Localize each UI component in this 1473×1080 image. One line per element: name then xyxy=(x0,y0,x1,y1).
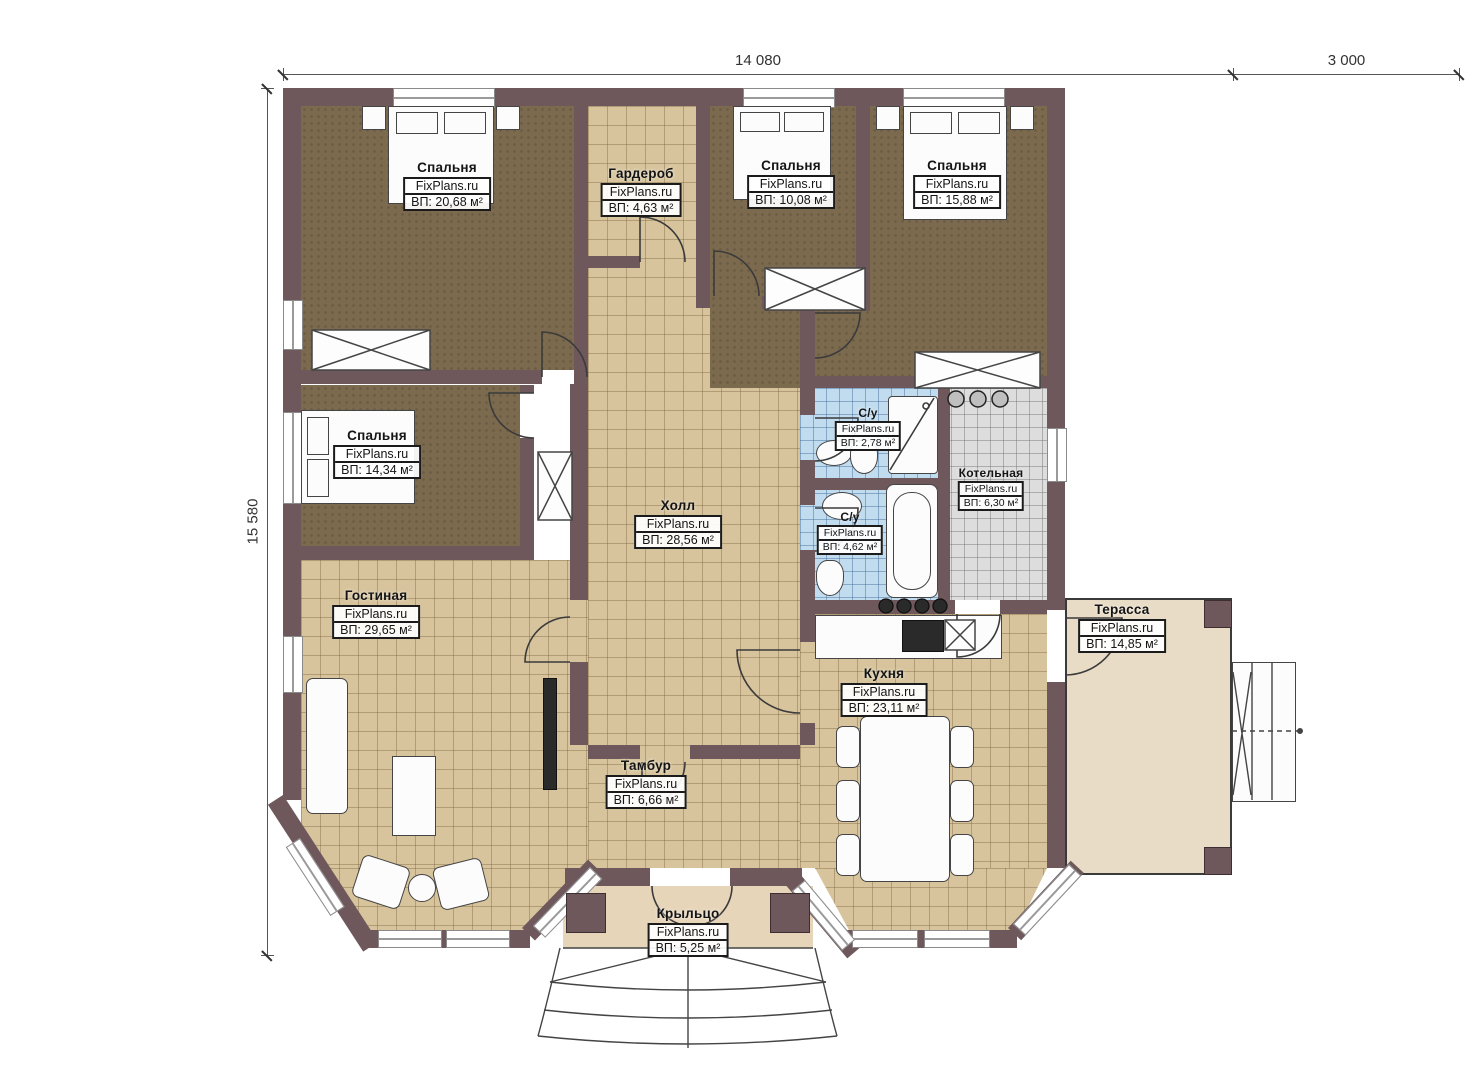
room-label-bedroom-top-right: Спальня FixPlans.ruВП: 15,88 м² xyxy=(913,158,1001,209)
room-site: FixPlans.ru xyxy=(837,423,899,437)
room-site: FixPlans.ru xyxy=(334,607,418,623)
boiler-unit xyxy=(970,391,986,407)
room-site: FixPlans.ru xyxy=(915,177,999,193)
burner xyxy=(897,599,911,613)
room-area: ВП: 5,25 м² xyxy=(650,941,727,955)
porch-steps xyxy=(815,948,837,1036)
floor-plan: 14 080 3 000 15 580 xyxy=(0,0,1473,1080)
room-label-wardrobe: Гардероб FixPlans.ruВП: 4,63 м² xyxy=(601,166,682,217)
room-area: ВП: 4,62 м² xyxy=(819,541,881,553)
room-label-bathroom-lower: С/у FixPlans.ruВП: 4,62 м² xyxy=(817,510,883,555)
room-name: С/у xyxy=(835,406,901,420)
door-arc xyxy=(489,393,534,438)
stair-diagonal xyxy=(1233,672,1251,795)
room-site: FixPlans.ru xyxy=(1080,621,1164,637)
room-name: Спальня xyxy=(747,158,835,173)
room-area: ВП: 6,66 м² xyxy=(608,793,685,807)
room-label-bathroom-upper: С/у FixPlans.ruВП: 2,78 м² xyxy=(835,406,901,451)
room-site: FixPlans.ru xyxy=(636,517,720,533)
room-site: FixPlans.ru xyxy=(603,185,680,201)
door-arc xyxy=(737,650,800,713)
room-name: Спальня xyxy=(333,428,421,443)
room-area: ВП: 10,08 м² xyxy=(749,193,833,207)
room-area: ВП: 14,34 м² xyxy=(335,463,419,477)
door-arc xyxy=(542,332,587,377)
room-area: ВП: 29,65 м² xyxy=(334,623,418,637)
burner xyxy=(915,599,929,613)
door-arc xyxy=(525,617,570,662)
room-site: FixPlans.ru xyxy=(749,177,833,193)
room-area: ВП: 28,56 м² xyxy=(636,533,720,547)
door-arc xyxy=(714,251,759,296)
room-name: Терасса xyxy=(1078,602,1166,617)
room-site: FixPlans.ru xyxy=(608,777,685,793)
room-name: Крыльцо xyxy=(648,906,729,921)
room-name: Тамбур xyxy=(606,758,687,773)
burner xyxy=(879,599,893,613)
room-area: ВП: 14,85 м² xyxy=(1080,637,1164,651)
room-name: Холл xyxy=(634,498,722,513)
room-area: ВП: 20,68 м² xyxy=(405,195,489,209)
shower-drain xyxy=(923,403,929,409)
boiler-unit xyxy=(992,391,1008,407)
room-label-bedroom-top-left: Спальня FixPlans.ruВП: 20,68 м² xyxy=(403,160,491,211)
room-name: Гардероб xyxy=(601,166,682,181)
room-label-boiler: Котельная FixPlans.ruВП: 6,30 м² xyxy=(958,466,1024,511)
room-name: Спальня xyxy=(913,158,1001,173)
room-label-porch: Крыльцо FixPlans.ruВП: 5,25 м² xyxy=(648,906,729,957)
room-name: Кухня xyxy=(841,666,928,681)
stair-arrow-end xyxy=(1297,728,1303,734)
room-area: ВП: 4,63 м² xyxy=(603,201,680,215)
room-label-hall: Холл FixPlans.ruВП: 28,56 м² xyxy=(634,498,722,549)
room-site: FixPlans.ru xyxy=(335,447,419,463)
room-label-bedroom-top-center: Спальня FixPlans.ruВП: 10,08 м² xyxy=(747,158,835,209)
burner xyxy=(933,599,947,613)
plan-annotations xyxy=(0,0,1473,1080)
room-site: FixPlans.ru xyxy=(843,685,926,701)
room-site: FixPlans.ru xyxy=(650,925,727,941)
room-site: FixPlans.ru xyxy=(960,483,1022,497)
room-site: FixPlans.ru xyxy=(819,527,881,541)
door-arc xyxy=(640,217,685,262)
room-label-vestibule: Тамбур FixPlans.ruВП: 6,66 м² xyxy=(606,758,687,809)
room-name: Гостиная xyxy=(332,588,420,603)
room-label-bedroom-left: Спальня FixPlans.ruВП: 14,34 м² xyxy=(333,428,421,479)
door-arc xyxy=(815,313,860,358)
porch-steps xyxy=(538,948,560,1036)
room-label-terrace: Терасса FixPlans.ruВП: 14,85 м² xyxy=(1078,602,1166,653)
room-name: С/у xyxy=(817,510,883,524)
boiler-unit xyxy=(948,391,964,407)
room-label-kitchen: Кухня FixPlans.ruВП: 23,11 м² xyxy=(841,666,928,717)
room-area: ВП: 15,88 м² xyxy=(915,193,999,207)
room-site: FixPlans.ru xyxy=(405,179,489,195)
room-name: Спальня xyxy=(403,160,491,175)
room-name: Котельная xyxy=(958,466,1024,480)
room-label-living: Гостиная FixPlans.ruВП: 29,65 м² xyxy=(332,588,420,639)
room-area: ВП: 2,78 м² xyxy=(837,437,899,449)
room-area: ВП: 6,30 м² xyxy=(960,497,1022,509)
room-area: ВП: 23,11 м² xyxy=(843,701,926,715)
